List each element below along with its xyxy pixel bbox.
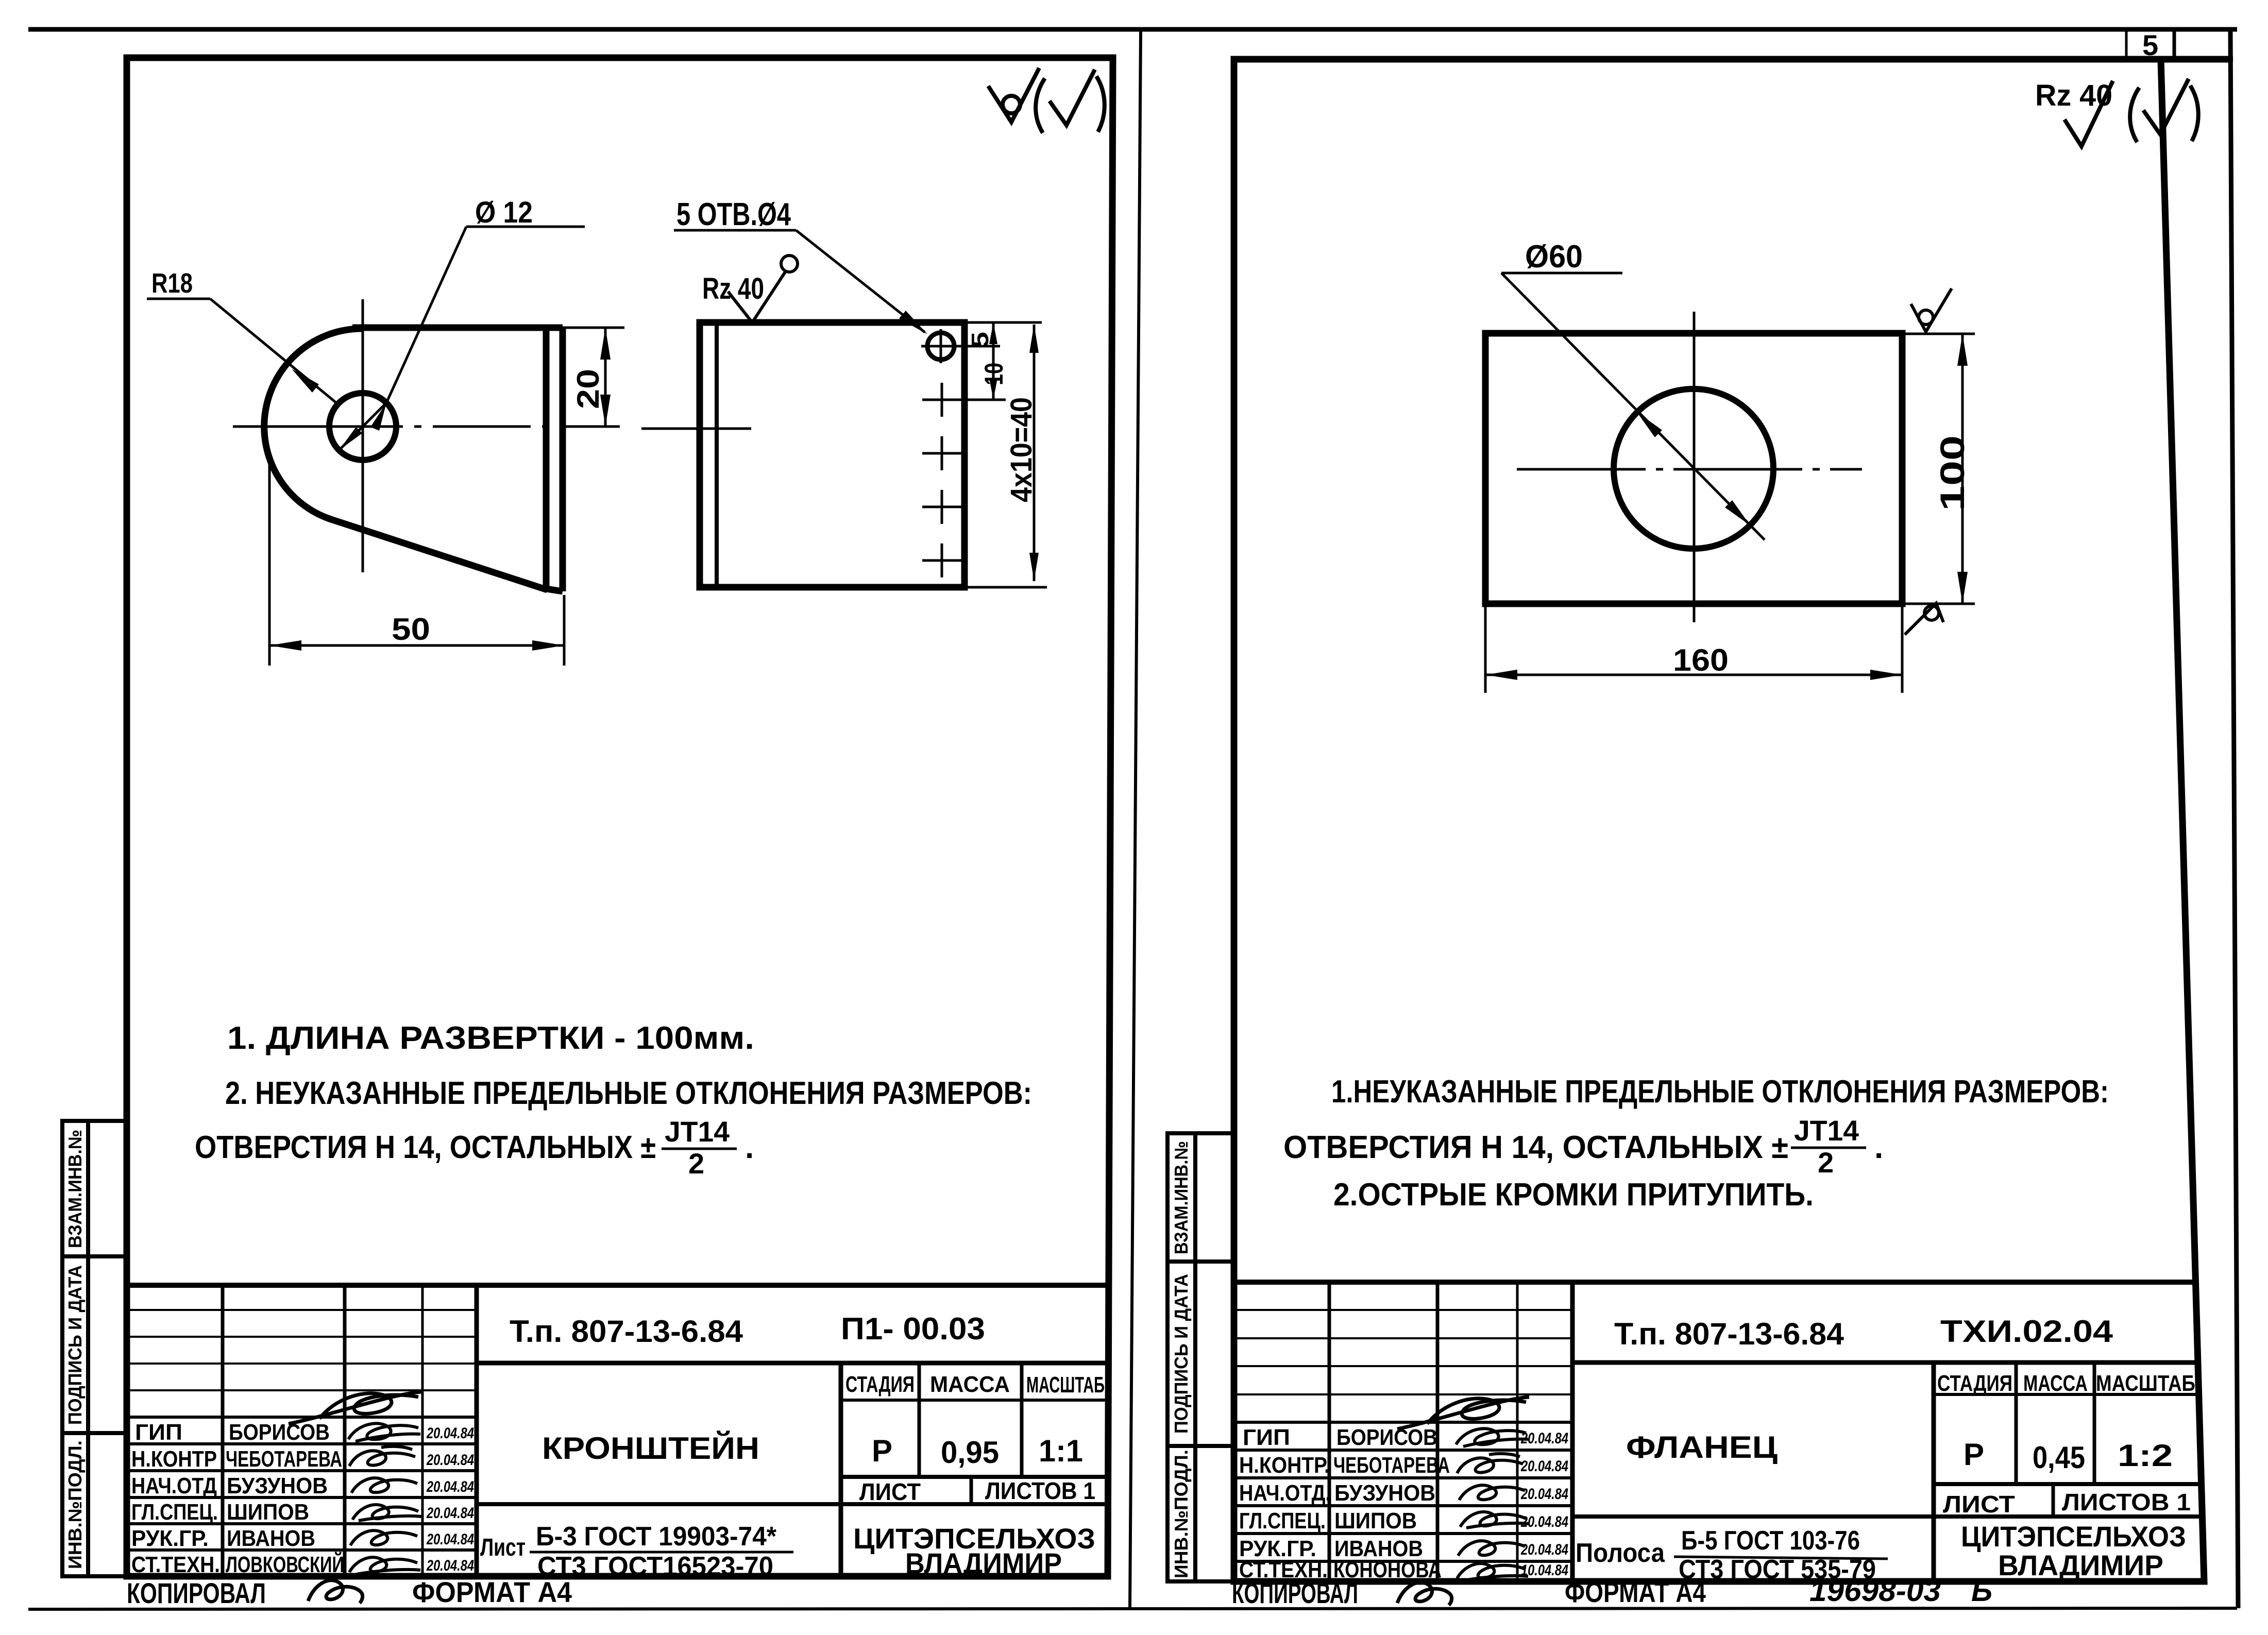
svg-text:Полоса: Полоса: [1576, 1538, 1665, 1568]
svg-text:50: 50: [392, 612, 430, 646]
svg-text:ЦИТЭПСЕЛЬХОЗ: ЦИТЭПСЕЛЬХОЗ: [1961, 1520, 2186, 1553]
svg-text:Р: Р: [1964, 1437, 1984, 1472]
svg-text:2. НЕУКАЗАННЫЕ ПРЕДЕЛЬНЫЕ ОТКЛ: 2. НЕУКАЗАННЫЕ ПРЕДЕЛЬНЫЕ ОТКЛОНЕНИЯ РАЗ…: [225, 1076, 1032, 1111]
svg-text:R18: R18: [151, 268, 193, 299]
svg-text:ОТВЕРСТИЯ Н 14, ОСТАЛЬНЫХ ±: ОТВЕРСТИЯ Н 14, ОСТАЛЬНЫХ ±: [1283, 1130, 1788, 1165]
svg-text:1. ДЛИНА РАЗВЕРТКИ - 100мм.: 1. ДЛИНА РАЗВЕРТКИ - 100мм.: [227, 1020, 754, 1056]
svg-text:НАЧ.ОТД.: НАЧ.ОТД.: [1239, 1480, 1331, 1506]
svg-text:ВЗАМ.ИНВ.№: ВЗАМ.ИНВ.№: [64, 1130, 86, 1248]
svg-text:ВЗАМ.ИНВ.№: ВЗАМ.ИНВ.№: [1171, 1141, 1192, 1254]
svg-text:СТ3 ГОСТ16523-70: СТ3 ГОСТ16523-70: [537, 1552, 773, 1581]
svg-text:ВЛАДИМИР: ВЛАДИМИР: [905, 1547, 1062, 1579]
svg-text:ПОДПИСЬ И ДАТА: ПОДПИСЬ И ДАТА: [64, 1265, 86, 1425]
svg-text:20: 20: [571, 369, 605, 409]
svg-text:П1- 00.03: П1- 00.03: [841, 1312, 985, 1346]
svg-text:ФОРМАТ А4: ФОРМАТ А4: [1565, 1576, 1706, 1608]
svg-text:Лист: Лист: [480, 1534, 526, 1561]
svg-text:ЧЕБОТАРЕВА: ЧЕБОТАРЕВА: [226, 1446, 342, 1472]
svg-text:Н.КОНТР.: Н.КОНТР.: [1239, 1453, 1330, 1478]
svg-text:20.04.84: 20.04.84: [1520, 1513, 1568, 1530]
svg-text:ГИП: ГИП: [135, 1420, 182, 1445]
svg-text:ГИП: ГИП: [1243, 1425, 1290, 1450]
svg-text:JT14: JT14: [1794, 1114, 1859, 1147]
svg-text:РУК.ГР.: РУК.ГР.: [131, 1526, 209, 1551]
svg-text:МАССА: МАССА: [930, 1372, 1010, 1397]
svg-text:ЧЕБОТАРЕВА: ЧЕБОТАРЕВА: [1333, 1453, 1450, 1478]
svg-text:20.04.84: 20.04.84: [1520, 1430, 1568, 1447]
svg-text:.: .: [745, 1130, 754, 1165]
svg-text:НАЧ.ОТД: НАЧ.ОТД: [131, 1473, 217, 1498]
svg-text:Р: Р: [872, 1434, 892, 1468]
svg-text:ФЛАНЕЦ: ФЛАНЕЦ: [1626, 1430, 1778, 1464]
svg-text:20.04.84: 20.04.84: [426, 1425, 474, 1442]
svg-text:20.04.84: 20.04.84: [426, 1505, 474, 1522]
svg-text:4x10=40: 4x10=40: [1005, 397, 1038, 502]
svg-text:20.04.84: 20.04.84: [1520, 1541, 1568, 1558]
svg-text:20.04.84: 20.04.84: [426, 1478, 474, 1495]
svg-text:ПОДПИСЬ И ДАТА: ПОДПИСЬ И ДАТА: [1171, 1274, 1192, 1434]
svg-text:МАСШТАБ: МАСШТАБ: [2096, 1371, 2195, 1396]
svg-text:ФОРМАТ А4: ФОРМАТ А4: [412, 1576, 572, 1608]
svg-text:МАССА: МАССА: [2023, 1371, 2088, 1396]
svg-text:ЛИСТ: ЛИСТ: [859, 1478, 921, 1505]
svg-text:БУЗУНОВ: БУЗУНОВ: [227, 1473, 328, 1498]
svg-text:СТАДИЯ: СТАДИЯ: [1937, 1371, 2012, 1396]
svg-text:СТАДИЯ: СТАДИЯ: [845, 1372, 915, 1397]
svg-text:Н.КОНТР: Н.КОНТР: [131, 1446, 217, 1472]
svg-text:1.НЕУКАЗАННЫЕ ПРЕДЕЛЬНЫЕ ОТКЛО: 1.НЕУКАЗАННЫЕ ПРЕДЕЛЬНЫЕ ОТКЛОНЕНИЯ РАЗМ…: [1331, 1074, 2109, 1110]
svg-text:20.04.84: 20.04.84: [1520, 1486, 1568, 1503]
svg-text:JT14: JT14: [665, 1115, 730, 1148]
svg-text:5 ОТВ.Ø4: 5 ОТВ.Ø4: [676, 197, 791, 232]
svg-text:2: 2: [688, 1147, 704, 1180]
svg-text:1:2: 1:2: [2118, 1438, 2173, 1473]
svg-text:ЛИСТОВ 1: ЛИСТОВ 1: [2062, 1489, 2191, 1515]
svg-text:Т.п. 807-13-6.84: Т.п. 807-13-6.84: [1614, 1317, 1844, 1351]
svg-text:2: 2: [1818, 1146, 1834, 1179]
svg-text:Б: Б: [1971, 1574, 1992, 1608]
svg-text:2.ОСТРЫЕ КРОМКИ ПРИТУПИТЬ.: 2.ОСТРЫЕ КРОМКИ ПРИТУПИТЬ.: [1333, 1177, 1814, 1213]
svg-text:ЛОВКОВСКИЙ: ЛОВКОВСКИЙ: [226, 1551, 344, 1577]
svg-text:Т.п. 807-13-6.84: Т.п. 807-13-6.84: [510, 1314, 743, 1349]
svg-text:МАСШТАБ: МАСШТАБ: [1026, 1372, 1105, 1398]
svg-text:1:1: 1:1: [1039, 1434, 1083, 1468]
svg-text:ВЛАДИМИР: ВЛАДИМИР: [1998, 1549, 2163, 1581]
svg-text:БОРИСОВ: БОРИСОВ: [1336, 1425, 1437, 1450]
svg-text:10.04.84: 10.04.84: [1521, 1562, 1568, 1579]
svg-text:0,95: 0,95: [941, 1435, 999, 1470]
svg-text:ЛИСТОВ 1: ЛИСТОВ 1: [985, 1477, 1095, 1504]
svg-text:ОТВЕРСТИЯ Н 14, ОСТАЛЬНЫХ ±: ОТВЕРСТИЯ Н 14, ОСТАЛЬНЫХ ±: [195, 1130, 656, 1165]
svg-text:Ø60: Ø60: [1525, 239, 1583, 275]
svg-text:5: 5: [967, 332, 993, 348]
svg-text:.: .: [1874, 1130, 1883, 1165]
svg-text:160: 160: [1673, 643, 1729, 677]
svg-text:0,45: 0,45: [2033, 1440, 2085, 1475]
svg-text:Б-5 ГОСТ 103-76: Б-5 ГОСТ 103-76: [1681, 1526, 1860, 1556]
svg-text:БОРИСОВ: БОРИСОВ: [229, 1420, 330, 1445]
svg-text:ИНВ.№ПОДЛ.: ИНВ.№ПОДЛ.: [1171, 1450, 1192, 1578]
svg-text:ГЛ.СПЕЦ.: ГЛ.СПЕЦ.: [1239, 1508, 1326, 1534]
svg-text:ИНВ.№ПОДЛ.: ИНВ.№ПОДЛ.: [64, 1440, 86, 1569]
svg-text:ЛИСТ: ЛИСТ: [1943, 1491, 2015, 1518]
svg-text:ТХИ.02.04: ТХИ.02.04: [1940, 1314, 2113, 1349]
svg-text:Ø 12: Ø 12: [475, 196, 533, 229]
svg-text:20.04.84: 20.04.84: [1520, 1458, 1568, 1475]
svg-text:10: 10: [979, 363, 1008, 385]
svg-text:БУЗУНОВ: БУЗУНОВ: [1334, 1480, 1435, 1506]
svg-text:20.04.84: 20.04.84: [426, 1531, 474, 1548]
svg-text:20.04.84: 20.04.84: [426, 1452, 474, 1469]
svg-text:КОПИРОВАЛ: КОПИРОВАЛ: [1232, 1577, 1358, 1609]
svg-text:ИВАНОВ: ИВАНОВ: [227, 1526, 315, 1551]
svg-text:КРОНШТЕЙН: КРОНШТЕЙН: [542, 1431, 759, 1466]
svg-text:СТ.ТЕХН.: СТ.ТЕХН.: [131, 1552, 220, 1577]
svg-text:Б-3 ГОСТ 19903-74*: Б-3 ГОСТ 19903-74*: [536, 1522, 777, 1552]
svg-text:ШИПОВ: ШИПОВ: [227, 1500, 309, 1525]
svg-text:КОПИРОВАЛ: КОПИРОВАЛ: [127, 1577, 266, 1609]
svg-text:ШИПОВ: ШИПОВ: [1334, 1508, 1417, 1534]
svg-text:20.04.84: 20.04.84: [426, 1557, 474, 1574]
svg-text:19698-03: 19698-03: [1809, 1574, 1941, 1608]
svg-text:ГЛ.СПЕЦ.: ГЛ.СПЕЦ.: [131, 1500, 218, 1525]
svg-text:100: 100: [1933, 435, 1971, 511]
